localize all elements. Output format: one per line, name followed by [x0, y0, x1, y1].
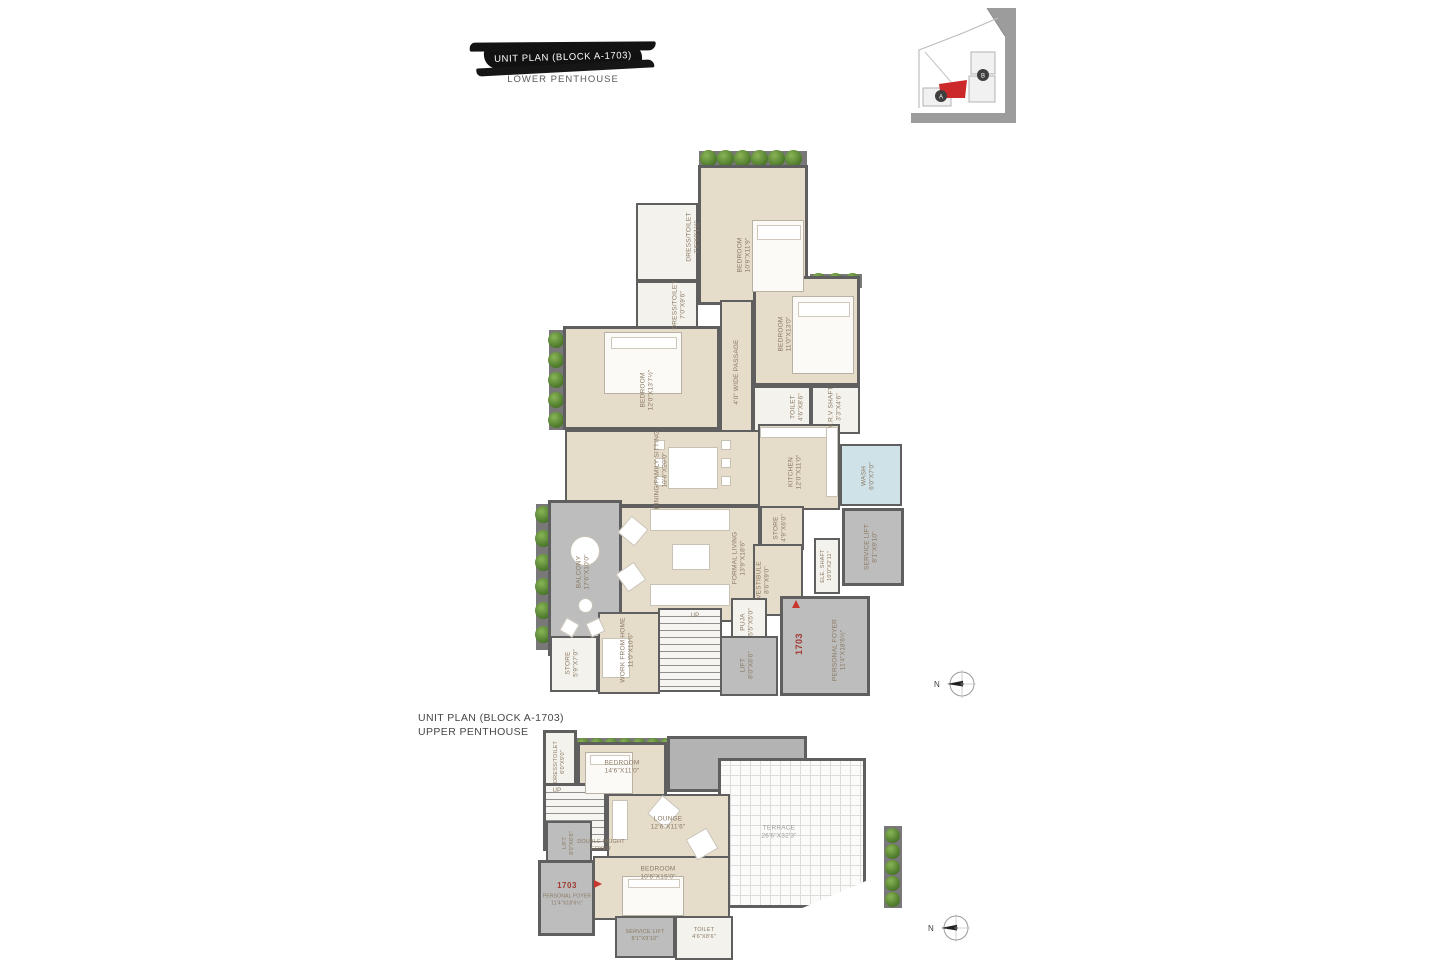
dining-table-icon	[668, 447, 718, 489]
sofa-icon	[650, 584, 730, 606]
sofa-icon	[650, 509, 730, 531]
room-label-store-2: STORE 5'9"X7'0"	[565, 649, 582, 677]
coffee-table-icon	[672, 544, 710, 570]
bed-icon	[752, 220, 804, 292]
compass-n-label: N	[928, 924, 934, 933]
tree-icon	[885, 828, 900, 843]
room-label-service-lift: SERVICE LIFT 8'1"X9'10"	[864, 524, 881, 570]
tree-icon	[548, 372, 564, 388]
stairs-up-label-upper: UP	[553, 788, 562, 796]
chair-icon	[721, 476, 731, 486]
tree-icon	[548, 352, 564, 368]
small-table-icon	[578, 598, 593, 613]
room-label-toilet-right: TOILET 4'6"X8'6"	[790, 393, 807, 421]
stairs-up-label: UP	[691, 613, 700, 621]
room-label-upper-terrace: TERRACE 26'6"X32'3"	[761, 825, 796, 842]
room-label-upper-bedroom-top: BEDROOM 14'6"X11'0"	[605, 760, 640, 777]
kitchen-counter-icon	[826, 427, 838, 497]
room-label-upper-service-lift: SERVICE LIFT 8'1"X9'10"	[625, 929, 664, 943]
tree-icon	[885, 860, 900, 875]
room-label-upper-lift: LIFT 8'0"X6'6"	[562, 831, 576, 855]
room-label-store-1: STORE 4'9"X6'0"	[773, 514, 790, 542]
room-label-bedroom-left: BEDROOM 12'0"X13'7½"	[640, 370, 657, 411]
entry-arrow-icon	[792, 600, 800, 608]
sofa-icon	[612, 800, 628, 840]
bed-icon	[792, 296, 854, 374]
lower-plan-title: UNIT PLAN (BLOCK A-1703)	[494, 50, 632, 65]
block-a-label: A	[939, 95, 943, 101]
room-label-vestibule: VESTIBULE 8'6"X9'0"	[756, 561, 773, 599]
room-label-dining: DINING/FAMILY SITTING 10'6"X20'0"	[654, 431, 671, 510]
room-label-kitchen: KITCHEN 12'0"X11'0"	[788, 455, 805, 490]
key-plan-block-a: A	[923, 80, 967, 106]
tree-icon	[548, 332, 564, 348]
room-label-bedroom-right: BEDROOM 11'0"X13'0"	[778, 317, 795, 352]
entry-arrow-icon	[594, 880, 602, 888]
lower-plan-title-banner: UNIT PLAN (BLOCK A-1703)	[484, 45, 642, 69]
room-label-upper-bedroom-low: BEDROOM 10'6"X15'0"	[640, 866, 675, 883]
room-label-double-height-foyer: DOUBLE HEIGHT FOYER	[577, 839, 625, 853]
tree-icon	[885, 876, 900, 891]
chair-icon	[721, 440, 731, 450]
block-b-label: B	[981, 74, 985, 80]
room-label-vrv-shaft: V.R.V SHAFT 3'3"X4'6"	[828, 386, 845, 428]
room-label-upper-toilet: TOILET 4'6"X8'6"	[692, 927, 716, 941]
tree-icon	[548, 392, 564, 408]
compass-icon	[936, 910, 972, 946]
room-label-dress-toilet-2: DRESS/TOILET 7'0"X9'6"	[672, 280, 689, 329]
unit-number-label: 1703	[794, 633, 806, 655]
compass-n-label: N	[934, 680, 940, 689]
room-label-upper-lounge: LOUNGE 12'6"X11'6"	[651, 816, 686, 833]
tree-icon	[548, 412, 564, 428]
room-label-dress-toilet-1: DRESS/TOILET 7'6"X9'1½"	[686, 212, 703, 261]
upper-plan-title: UNIT PLAN (BLOCK A-1703)	[418, 711, 564, 725]
room-label-ele-shaft: ELE. SHAFT 10'0"X2'11"	[820, 549, 834, 582]
tree-icon	[885, 844, 900, 859]
room-label-bedroom-top: BEDROOM 10'9"X11'9"	[737, 238, 754, 273]
room-label-upper-dress-toilet: DRESS/TOILET 6'0"X9'0"	[553, 741, 567, 783]
lower-plan-subtitle: LOWER PENTHOUSE	[484, 74, 642, 85]
room-label-formal-living: FORMAL LIVING 13'9"X18'6"	[732, 532, 749, 585]
site-key-plan: B A	[903, 6, 1023, 128]
room-label-lift: LIFT 8'0"X6'6"	[740, 651, 757, 679]
room-label-wash: WASH 6'0"X7'0"	[861, 462, 878, 490]
key-plan-block-b: B	[969, 52, 995, 102]
room-label-balcony: BALCONY 17'6"X10'0"	[576, 554, 593, 589]
room-label-passage: 4'0" WIDE PASSAGE	[733, 339, 741, 404]
room-label-upper-personal-foyer: PERSONAL FOYER 11'4"X18'6½"	[543, 894, 591, 907]
tree-icon	[885, 892, 900, 907]
chair-icon	[721, 458, 731, 468]
room-label-personal-foyer: PERSONAL FOYER 11'4"X18'6½"	[832, 619, 849, 681]
room-label-puja: PUJA 5'5"X5'0"	[740, 608, 757, 636]
room-label-work-from-home: WORK FROM HOME 11'0"X10'6"	[620, 617, 637, 682]
unit-number-label-upper: 1703	[557, 881, 577, 891]
compass-icon	[942, 666, 978, 702]
